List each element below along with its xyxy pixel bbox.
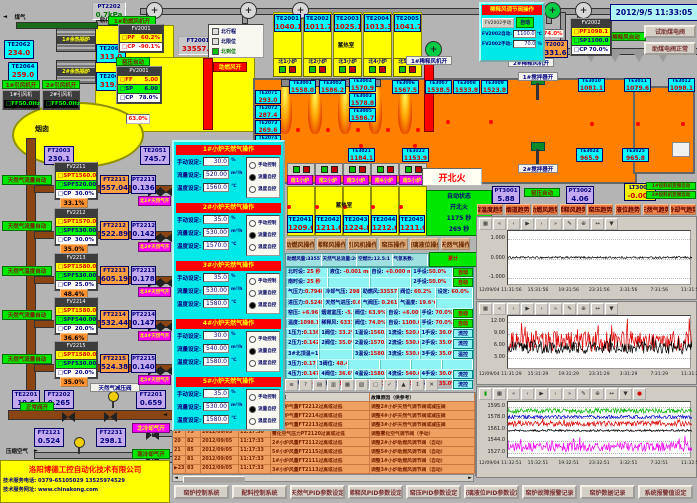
parameter-cell: 自设: +6.00Pa (386, 309, 419, 318)
prev-icon[interactable]: ‹ (507, 303, 520, 315)
panel-row: □CP25.0% (56, 281, 96, 289)
value-box-FT2215: FT2215524.38 (100, 354, 129, 373)
led-green (279, 66, 286, 73)
alarm-cell: 调整2#小炉天然气调节阀或减压阀 (370, 402, 475, 411)
trend-button-7[interactable]: 冷却气趋势 (670, 204, 696, 215)
value-box-tag: TE2051 (141, 147, 169, 155)
led-red (359, 166, 366, 173)
parameter-cell: 4流设: 540.00m³/h (386, 370, 419, 379)
chart-plot-area (507, 315, 691, 369)
popup-radio-option[interactable]: 温度自控 (248, 415, 278, 427)
popup-radio-option[interactable]: 流量自控 (248, 345, 278, 357)
value-box-tag: TE2005 (395, 15, 420, 23)
air-damper-bar[interactable] (424, 57, 434, 132)
burner-label-south: 南2小炉 (315, 175, 341, 185)
alarm-row[interactable]: 20822012/09/0511:17:332#小炉风量FT2112过高或过低调… (173, 438, 475, 447)
value-box-tag: PT3001 (493, 187, 519, 195)
value-box-TE3001: TE30011558.0 (289, 80, 316, 94)
led-green (377, 166, 384, 173)
popup-input[interactable]: 540.00 (203, 344, 229, 353)
popup-radio-option[interactable]: 流量自控 (248, 287, 278, 299)
parameter-cell: 液位: -0.001 mm (328, 268, 370, 277)
sensor-dot (446, 120, 450, 124)
label-: 煤气 (10, 12, 30, 21)
radio-label: 温度自控 (258, 186, 276, 192)
popup-radio-option[interactable]: 温度自控 (248, 241, 278, 253)
parameter-cell: 南时设: 25 秒 (286, 278, 328, 287)
value-box-TE2051: TE2051745.7 (140, 146, 170, 165)
y-tick-label: 1561.0 (478, 426, 505, 432)
burner-box-north: 北4小炉 (363, 58, 392, 77)
alarm-cell: 2012/09/05 (201, 456, 239, 465)
first-icon[interactable]: « (493, 218, 506, 230)
flue-damper-bar[interactable] (203, 58, 213, 130)
scroll-left-icon[interactable]: ◄ (174, 476, 178, 481)
burner-leds (394, 66, 421, 73)
manual-mode-button[interactable]: FV2002手动 (482, 18, 514, 28)
popup-radio-option[interactable]: 温度自控 (248, 357, 278, 369)
value-box-value: 1011.7 (305, 23, 330, 31)
grid3-icon[interactable]: ▦ (341, 379, 354, 391)
popup-radio-option[interactable]: 流量自控 (248, 403, 278, 415)
panel-row: □CP-90.1% (120, 43, 162, 51)
value-box-value: 5.88 (493, 195, 519, 203)
parameter-cell (328, 278, 370, 287)
popup-section: 1#小炉天然气操作手动设定:30.0%流量设定:520.00m³/h温度设定:1… (176, 145, 281, 200)
field-input[interactable]: 70.0 (513, 40, 537, 48)
value-box-value: 1025.1 (335, 23, 360, 31)
grid-icon[interactable]: ▦ (493, 388, 506, 400)
popup-radio-option[interactable]: 手动控制 (248, 333, 278, 345)
popup-unit: % (231, 332, 236, 337)
parameter-cell: 2压力:0.142MPa (286, 339, 319, 348)
value-box-TE3011: TE30111079.6 (624, 78, 651, 92)
value-box-TE3009: TE30091523.8 (481, 80, 508, 94)
burner-label: 北1小炉 (274, 59, 301, 66)
value-box-tag: FT2121 (35, 429, 63, 437)
alarm-cell: 4#小炉气量FT2214过高或过低 (271, 411, 370, 420)
parameter-cell: 4压力:0.147MPa (286, 370, 319, 379)
first-icon[interactable]: « (493, 303, 506, 315)
window-icon[interactable]: ▢ (369, 379, 382, 391)
burner-label: 北4小炉 (364, 59, 391, 66)
mode-badge: 自动 (453, 278, 473, 287)
bottom-button-3[interactable]: 稀释风PID参数设定 (348, 485, 403, 499)
value-box-value: 0.659 (137, 399, 165, 407)
bottom-button-1[interactable]: 配料控制系统 (232, 485, 287, 499)
burner-leds (304, 66, 331, 73)
trend-button-1[interactable]: 烟道趋势 (505, 204, 531, 215)
parameter-cell: 烟道室压: -5.887Pa (319, 309, 352, 318)
value-box-value: 0.147 (132, 319, 155, 327)
grid2-icon[interactable]: ▥ (327, 379, 340, 391)
last-icon[interactable]: » (549, 218, 562, 230)
pen-icon[interactable]: ✎ (563, 218, 576, 230)
help-icon[interactable]: ? (299, 379, 312, 391)
field-input[interactable]: 1100.0 (513, 30, 536, 38)
x-tick-label: 11:32:51 (681, 461, 697, 466)
popup-input[interactable]: 530.00 (203, 228, 229, 237)
popup-radio-box: 手动控制流量自控温度自控 (246, 215, 280, 256)
popup-input[interactable]: 1560.0 (203, 183, 229, 192)
parameter-cell: 自设: 1100.0℃ (386, 319, 419, 328)
popup-unit: % (231, 216, 236, 221)
bottom-button-5[interactable]: 玻璃液位PID参数设定 (464, 485, 519, 499)
save-icon[interactable]: ▼ (605, 303, 618, 315)
value-box-value: 0.140 (132, 363, 155, 371)
last-icon[interactable]: » (549, 303, 562, 315)
parameter-cell (442, 360, 473, 369)
top-button-1[interactable]: 助煤电阀正常 (644, 42, 696, 55)
limit-switch-box: 北行程北限位北到位 (208, 24, 264, 58)
value-box-value: 532.44 (101, 319, 128, 327)
value-box-PT3001: PT30015.88 (492, 186, 520, 204)
bell-icon[interactable]: ▲ (397, 379, 410, 391)
popup-field-label: 温度设定: (177, 184, 201, 192)
alarm-row[interactable]: ▶23832012/09/0511:17:333#小炉风量FT2113过高或过低… (173, 465, 475, 474)
parameter-row: 窑压: +6.96Pa烟道室压: -5.887Pa阀位: 63.9%自设: +6… (286, 309, 473, 319)
value-box-TE2044: TE20441212.6 (371, 215, 397, 233)
zoom-icon[interactable]: ⊕ (577, 303, 590, 315)
value-box-value: 234.0 (5, 49, 33, 57)
parameter-row: 北时设: 25 秒液位: -0.001 mm自设: +0.000 mm1手设:5… (286, 268, 473, 278)
popup-unit: m³/h (231, 229, 243, 234)
trend-button-2[interactable]: 助燃风趋势 (532, 204, 558, 215)
popup-input[interactable]: 530.00 (203, 402, 229, 411)
value-box-value: 745.7 (141, 155, 169, 163)
popup-input[interactable]: 1580.0 (203, 299, 229, 308)
value-box-FT2214: FT2214532.44 (100, 310, 129, 329)
radio-label: 手动控制 (258, 162, 276, 168)
play-icon[interactable]: ▶ (535, 388, 548, 400)
trend-button-6[interactable]: 天然气趋势 (643, 204, 669, 215)
label-2#: 2#引风机开 (42, 80, 80, 89)
parameter-cell: 3手设: 35.0% (420, 350, 453, 359)
sensor-dot (326, 128, 330, 132)
popup-section-title: 1#小炉天然气操作 (176, 145, 281, 155)
instrument-panel-1#: 1#引风机□FF50.0Hz (2, 90, 40, 110)
popup-radio-option[interactable]: 手动控制 (248, 159, 278, 171)
value-box-tag: TE2042 (316, 216, 340, 224)
save-icon[interactable]: ▼ (619, 388, 632, 400)
value-box-tag: PT2213 (132, 267, 155, 275)
panel-row: □CP78.0% (118, 94, 160, 102)
top-button-0[interactable]: 试助煤电阀 (644, 25, 696, 38)
led-red (289, 66, 296, 73)
led-red (303, 166, 310, 173)
value-box-TE2045: TE20451211.0 (399, 215, 425, 233)
measure-icon[interactable]: ↔ (591, 303, 604, 315)
measure-icon[interactable]: ↔ (605, 388, 618, 400)
parameter-cell (370, 278, 412, 287)
led-green (293, 166, 300, 173)
radio-label: 流量自控 (258, 406, 276, 412)
first-icon[interactable]: « (507, 388, 520, 400)
parameter-cell: 窑压: +6.96Pa (286, 309, 319, 318)
panel-title: FV2211 (56, 164, 96, 171)
op-button-2[interactable]: 引风机操作 (348, 238, 377, 250)
popup-radio-option[interactable]: 手动控制 (248, 217, 278, 229)
alarm-row[interactable]: 21852012/09/0511:17:335#小炉风量FT2115过高或过低调… (173, 447, 475, 456)
panel-row: □SPF530.00 (56, 272, 96, 280)
company-name: 洛阳博德工控自动化技术有限公司 (1, 464, 169, 475)
scada-screen: 洛阳博德工控自动化技术有限公司 技术服务电话: 0379-65105029 13… (0, 0, 697, 503)
last-icon[interactable]: » (563, 388, 576, 400)
close-icon[interactable]: ✕ (425, 379, 438, 391)
panel-title: FV2001 (120, 26, 162, 33)
bottom-button-0[interactable]: 窑炉控制系统 (174, 485, 229, 499)
popup-radio-option[interactable]: 温度自控 (248, 183, 278, 195)
trend-button-0[interactable]: 窑温度趋势 (477, 204, 503, 215)
radio-icon (249, 162, 256, 169)
value-box-value: 1079.6 (625, 85, 650, 92)
value-box-value: 1211.0 (400, 224, 424, 232)
value-box-value: 524.38 (101, 363, 128, 371)
sensor-dot (636, 122, 640, 126)
popup-unit: m³/h (231, 345, 243, 350)
value-box-value: 965.8 (623, 155, 648, 162)
popup-field-label: 手动设定: (177, 216, 201, 224)
field-label: FV2002自动: (482, 31, 512, 37)
popup-section: 2#小炉天然气操作手动设定:35.0%流量设定:530.00m³/h温度设定:1… (176, 203, 281, 258)
bottom-button-8[interactable]: 系统报警值设定 (638, 485, 693, 499)
value-box-value: 0.136 (132, 184, 155, 192)
trend-button-3[interactable]: 稀释风趋势 (560, 204, 586, 215)
panel-title: FV2002 (572, 20, 610, 27)
parameter-cell: 2手设:50.0% (411, 278, 453, 287)
value-box-value: 1013.3 (365, 23, 390, 31)
popup-unit: ℃ (231, 184, 236, 189)
value-box-TE3004: TE30041570.9 (349, 78, 376, 92)
zoom-icon[interactable]: ⊕ (591, 388, 604, 400)
grid-icon[interactable]: ▦ (479, 218, 492, 230)
value-box-value: 1224.8 (344, 224, 368, 232)
scroll-right-icon[interactable]: ► (468, 476, 472, 481)
auto-mode-label: 天然气流量自动 (2, 175, 52, 185)
popup-field-label: 温度设定: (177, 300, 201, 308)
op-button-3[interactable]: 窑压操作 (379, 238, 408, 250)
parameter-cell: 4温设:1580.0℃ (353, 370, 386, 379)
chart-series (508, 316, 692, 370)
alarm-cell: 20 (173, 438, 186, 447)
value-box-value: 1209.6 (288, 224, 312, 232)
popup-field-label: 流量设定: (177, 345, 201, 353)
popup-radio-option[interactable]: 流量自控 (248, 171, 278, 183)
radio-label: 流量自控 (258, 348, 276, 354)
panel-row: □FF5.00 (118, 76, 160, 84)
sensor-dot (371, 205, 375, 209)
value-box-value: 1586.2 (320, 87, 345, 94)
popup-input[interactable]: 35.0 (203, 273, 229, 282)
prev-icon[interactable]: ‹ (521, 388, 534, 400)
save-icon[interactable]: ▼ (605, 218, 618, 230)
trend-button-5[interactable]: 液位趋势 (615, 204, 641, 215)
start-icon[interactable]: ▮ (479, 388, 492, 400)
measure-icon[interactable]: ↔ (591, 218, 604, 230)
value-box-value: 965.9 (577, 155, 602, 162)
next-icon[interactable]: › (535, 303, 548, 315)
gauge-icon (108, 391, 119, 402)
op-button-4[interactable]: 玻璃液位操作 (410, 238, 439, 250)
y-tick-label: 1544.0 (478, 437, 505, 443)
popup-radio-box: 手动控制流量自控温度自控 (246, 157, 280, 198)
value-box-TE2062: TE2062234.0 (4, 40, 34, 59)
alarm-cell: 1#小炉风量FT2111过高或过低 (271, 456, 370, 465)
pen-icon[interactable]: ✎ (577, 388, 590, 400)
stop-icon[interactable]: ● (633, 388, 646, 400)
value-box-FT2201: FT22010.659 (136, 390, 166, 409)
panel-title: FV2213 (56, 255, 96, 262)
parameter-cell: 4手设: 30.0% (420, 370, 453, 379)
popup-input[interactable]: 30.0 (203, 157, 229, 166)
led-green (405, 166, 412, 173)
radio-icon (249, 336, 256, 343)
value-box-tag: TE2064 (9, 63, 37, 71)
popup-radio-option[interactable]: 手动控制 (248, 391, 278, 403)
valve-position-box: 35.0% (60, 377, 88, 387)
sort-icon[interactable]: ↕ (411, 379, 424, 391)
ack-icon[interactable]: ✓ (383, 379, 396, 391)
alarm-row[interactable]: 22812012/09/0511:17:331#小炉风量FT2111过高或过低调… (173, 456, 475, 465)
burner-label-south: 南4小炉 (371, 175, 397, 185)
radio-icon (249, 220, 256, 227)
grid-icon[interactable]: ▦ (479, 303, 492, 315)
panel-row: □CP30.0% (56, 190, 96, 198)
parameter-cell: 气压力:0.794MPa (286, 288, 323, 297)
grid1-icon[interactable]: ▤ (313, 379, 326, 391)
trend-chart-2: ▮▦«‹▶›»✎⊕↔▼●1595.01578.01561.01544.01527… (476, 386, 697, 478)
prev-icon[interactable]: ‹ (507, 218, 520, 230)
popup-input[interactable]: 30.0 (203, 331, 229, 340)
panel-row: □SPF530.00 (56, 227, 96, 235)
alarm-header-cell: 故障原因（供参考） (370, 393, 475, 402)
value-box-tag: PT2212 (132, 222, 155, 230)
value-box-tag: TE2003 (335, 15, 360, 23)
op-button-1[interactable]: 稀释风操作 (317, 238, 346, 250)
value-box-tag: FT2003 (45, 147, 73, 155)
popup-unit: m³/h (231, 287, 243, 292)
popup-input[interactable]: 35.0 (203, 389, 229, 398)
panel-row: □CP70.0% (572, 46, 610, 54)
popup-radio-box: 手动控制流量自控温度自控 (246, 273, 280, 314)
play-icon[interactable]: ▶ (521, 218, 534, 230)
bottom-button-2[interactable]: 天然气PID参数设定 (290, 485, 345, 499)
burner-box-north: 北3小炉 (333, 58, 362, 77)
x-tick-label: 7:31:56 (650, 288, 668, 293)
panel-row: □FF50.0Hz (4, 100, 38, 108)
popup-input[interactable]: 1580.0 (203, 357, 229, 366)
trend-button-4[interactable]: 窑压趋势 (587, 204, 613, 215)
alarm-hscrollbar[interactable]: ◄► (172, 474, 474, 482)
y-tick-label: 9.00 (478, 330, 505, 336)
popup-input[interactable]: 1580.0 (203, 415, 229, 424)
burner-box-north: 北2小炉 (303, 58, 332, 77)
radio-label: 手动控制 (258, 394, 276, 400)
popup-input[interactable]: 530.00 (203, 286, 229, 295)
limit-switch-option[interactable]: 北限位 (210, 36, 262, 46)
parameter-cell: 温度:1098.1℃ (286, 319, 319, 328)
instrument-panel-FV2001: FV2001□PF60.2%□CP-90.1% (118, 24, 164, 53)
popup-radio-option[interactable]: 手动控制 (248, 275, 278, 287)
parameter-row: 南时设: 25 秒2手设:50.0%自动 (286, 278, 473, 288)
parameter-cell: 3阀位: 48.4% (317, 360, 348, 369)
limit-switch-label: 北到位 (221, 48, 236, 55)
popup-section-title: 2#小炉天然气操作 (176, 203, 281, 213)
bottom-button-7[interactable]: 窑炉数据记录 (580, 485, 635, 499)
scroll-thumb[interactable] (183, 476, 245, 483)
radio-icon (249, 406, 256, 413)
panel-row: □CP30.0% (56, 236, 96, 244)
limit-switch-option[interactable]: 北到位 (210, 46, 262, 56)
value-box-tag: FT2201 (137, 391, 165, 399)
zoom-icon[interactable]: ⊕ (577, 218, 590, 230)
sensor-dot (386, 128, 390, 132)
led-green (309, 66, 316, 73)
panel-row: □SPF520.00 (56, 181, 96, 189)
label-: 压缩空气 (2, 447, 32, 455)
mode-badge: 流控 (453, 339, 473, 348)
bottom-button-6[interactable]: 窑炉故障报警记录 (522, 485, 577, 499)
value-box-value: 1211.0 (316, 224, 340, 232)
list-icon[interactable]: ≡ (285, 379, 298, 391)
x-tick-label: 19:32:51 (558, 461, 579, 466)
popup-input[interactable]: 520.00 (203, 170, 229, 179)
label-: 蓄热室 (332, 40, 360, 49)
label-: ◄ (160, 410, 170, 420)
parameter-cell: 设定: 60.0% (436, 288, 473, 297)
popup-field-label: 流量设定: (177, 171, 201, 179)
radio-icon (249, 186, 256, 193)
pen-icon[interactable]: ✎ (563, 303, 576, 315)
alarm-cell: 21 (173, 447, 186, 456)
label-1#: 1#引风机开 (2, 80, 40, 89)
mode-badge: 自动 (453, 268, 473, 277)
value-box-value: 1570.9 (350, 85, 375, 92)
popup-radio-option[interactable]: 温度自控 (248, 299, 278, 311)
popup-unit: % (231, 158, 236, 163)
value-box-tag: PT2211 (132, 176, 155, 184)
alarm-cell: 11:17:33 (239, 438, 271, 447)
burner-leds (274, 66, 301, 73)
parameter-cell: 1流设: 520.00m³/h (386, 329, 419, 338)
op-button-0[interactable]: 助燃风操作 (286, 238, 315, 250)
value-box-TE2002: TE20021011.7 (304, 14, 331, 32)
value-box-TE2041: TE20411209.6 (287, 215, 313, 233)
parameter-cell: 气温度: 19.6℃ (398, 299, 435, 308)
op-button-5[interactable]: 天然气操作 (441, 238, 470, 250)
value-box-tag: PT2202 (93, 3, 125, 11)
value-box-tag: PT3002 (567, 187, 593, 195)
parameter-cell: 进压力:0.524MPa (286, 299, 323, 308)
bottom-button-4[interactable]: 窑压PID参数设定 (406, 485, 461, 499)
play-icon[interactable]: ▶ (521, 303, 534, 315)
alarm-cell: 5#小炉风量FT2115过高或过低 (271, 447, 370, 456)
value-box-tag: FT2211 (101, 176, 128, 184)
next-icon[interactable]: › (549, 388, 562, 400)
radio-label: 温度自控 (258, 302, 276, 308)
popup-input[interactable]: 35.0 (203, 215, 229, 224)
burner-box-north: 北1小炉 (273, 58, 302, 77)
popup-radio-option[interactable]: 流量自控 (248, 229, 278, 241)
auto-mode-label: 天然气流量自动 (2, 354, 52, 364)
popup-title: 稀释风调节阀操作 (482, 5, 542, 15)
grid4-icon[interactable]: ▧ (355, 379, 368, 391)
popup-input[interactable]: 1570.0 (203, 241, 229, 250)
next-icon[interactable]: › (535, 218, 548, 230)
value-box-TE2064: TE2064259.0 (8, 62, 38, 81)
limit-switch-option[interactable]: 北行程 (210, 26, 262, 36)
value-box-value: 1558.0 (290, 87, 315, 94)
